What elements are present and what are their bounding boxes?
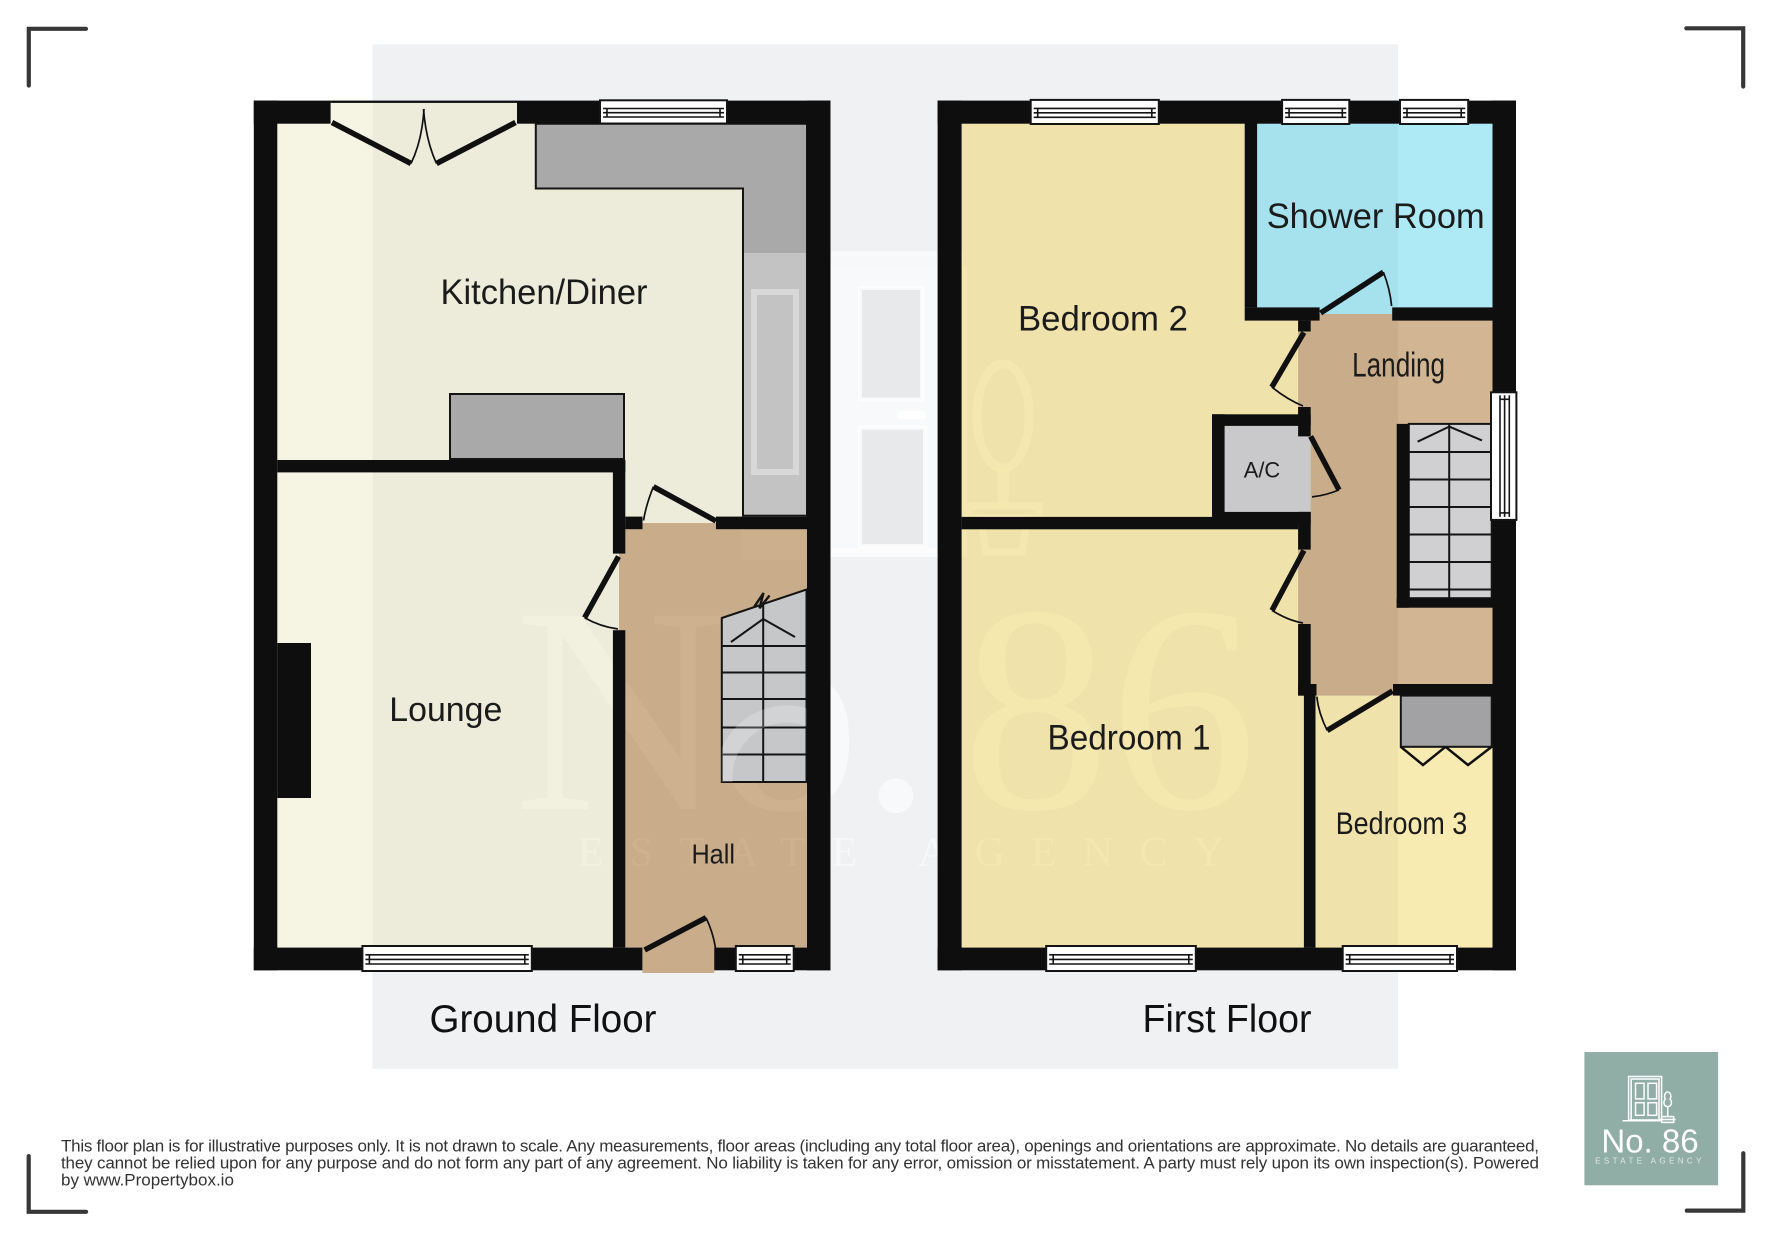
svg-text:Landing: Landing [1352,346,1445,384]
svg-text:Kitchen/Diner: Kitchen/Diner [441,273,648,312]
svg-text:Shower Room: Shower Room [1267,197,1485,236]
svg-text:ESTATE AGENCY: ESTATE AGENCY [1595,1157,1705,1166]
svg-text:Bedroom 2: Bedroom 2 [1018,299,1188,338]
svg-text:A/C: A/C [1244,457,1281,482]
svg-text:they cannot be relied upon for: they cannot be relied upon for any purpo… [61,1154,1539,1173]
svg-text:Bedroom 3: Bedroom 3 [1336,805,1468,841]
svg-text:Hall: Hall [691,839,735,870]
svg-text:Ground Floor: Ground Floor [430,998,657,1041]
svg-text:Lounge: Lounge [389,691,502,729]
svg-text:Bedroom 1: Bedroom 1 [1048,719,1211,758]
svg-text:by www.Propertybox.io: by www.Propertybox.io [61,1171,234,1190]
svg-text:First Floor: First Floor [1143,998,1312,1041]
svg-text:No. 86: No. 86 [1601,1122,1698,1159]
